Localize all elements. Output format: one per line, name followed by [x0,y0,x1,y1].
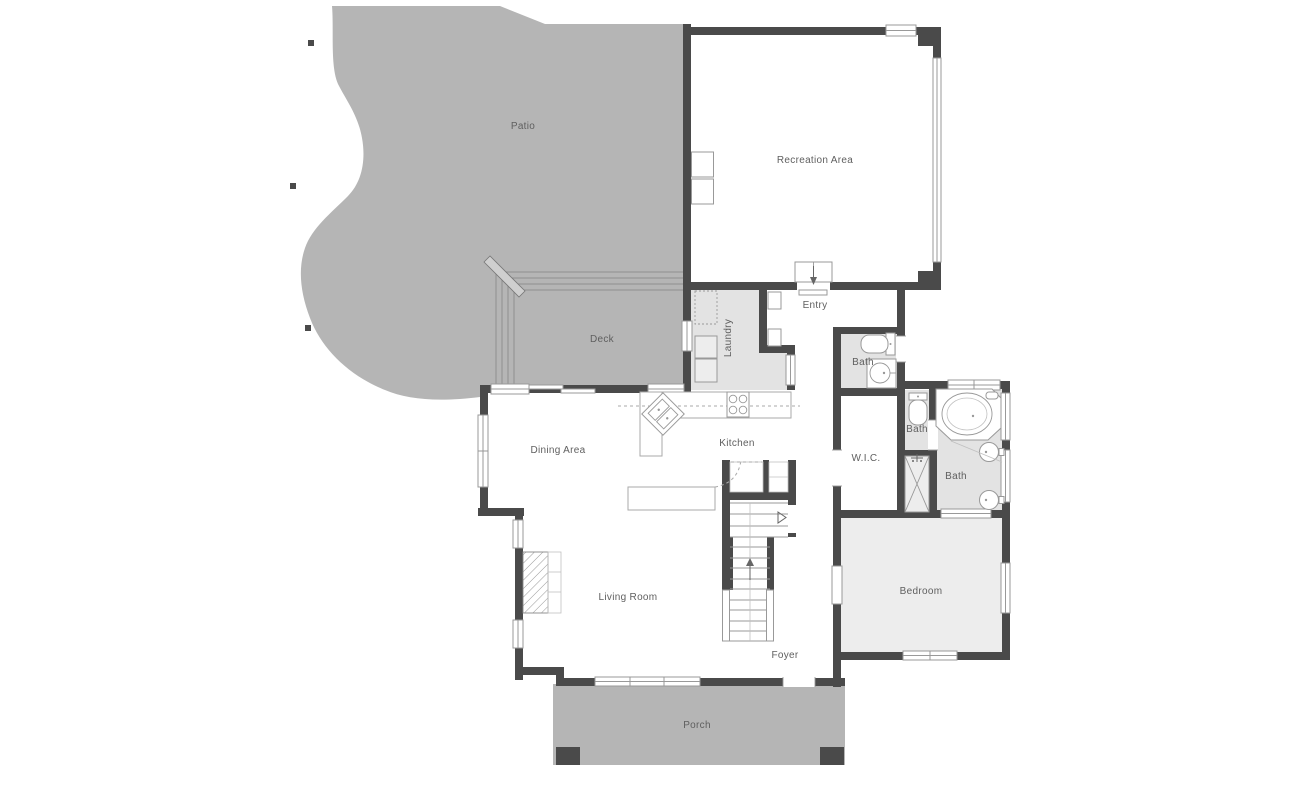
entry-door [795,262,832,295]
bedroom-door [832,566,842,604]
dining-label: Dining Area [531,445,586,456]
floor-plan-svg: Patio Recreation Area Deck Laundry Entry… [0,0,1300,800]
fireplace-fixture [523,552,561,613]
entry-closet-shelves [768,292,781,346]
hall-bath-toilet-fixture [909,393,927,425]
recreation-label: Recreation Area [777,155,853,166]
stove-fixture [727,392,749,417]
stair-up-arrow [746,558,754,566]
entry-label: Entry [803,300,828,311]
porch-post-left [556,747,580,765]
wic-label: W.I.C. [851,453,880,464]
entry-bath-toilet-fixture [861,333,895,355]
laundry-label: Laundry [723,319,734,357]
living-label: Living Room [599,592,658,603]
master-bath-label: Bath [945,471,967,482]
foyer-label: Foyer [771,650,798,661]
recreation-cabinets [692,152,714,204]
hall-bath-label: Bath [906,424,928,435]
kitchen-label: Kitchen [719,438,754,449]
porch-post-right [820,747,844,765]
stair-closets [730,462,788,492]
bathtub-fixture [936,389,1001,440]
porch-label: Porch [683,720,711,731]
entry-bath-label: Bath [852,357,874,368]
bedroom-label: Bedroom [900,586,943,597]
bar-counter [628,487,715,510]
deck-label: Deck [590,334,615,345]
patio-area [301,6,688,400]
bedroom-floor [841,518,1002,652]
floor-plan-page: Patio Recreation Area Deck Laundry Entry… [0,0,1300,800]
patio-label: Patio [511,121,535,132]
shower-fixture [905,454,929,512]
